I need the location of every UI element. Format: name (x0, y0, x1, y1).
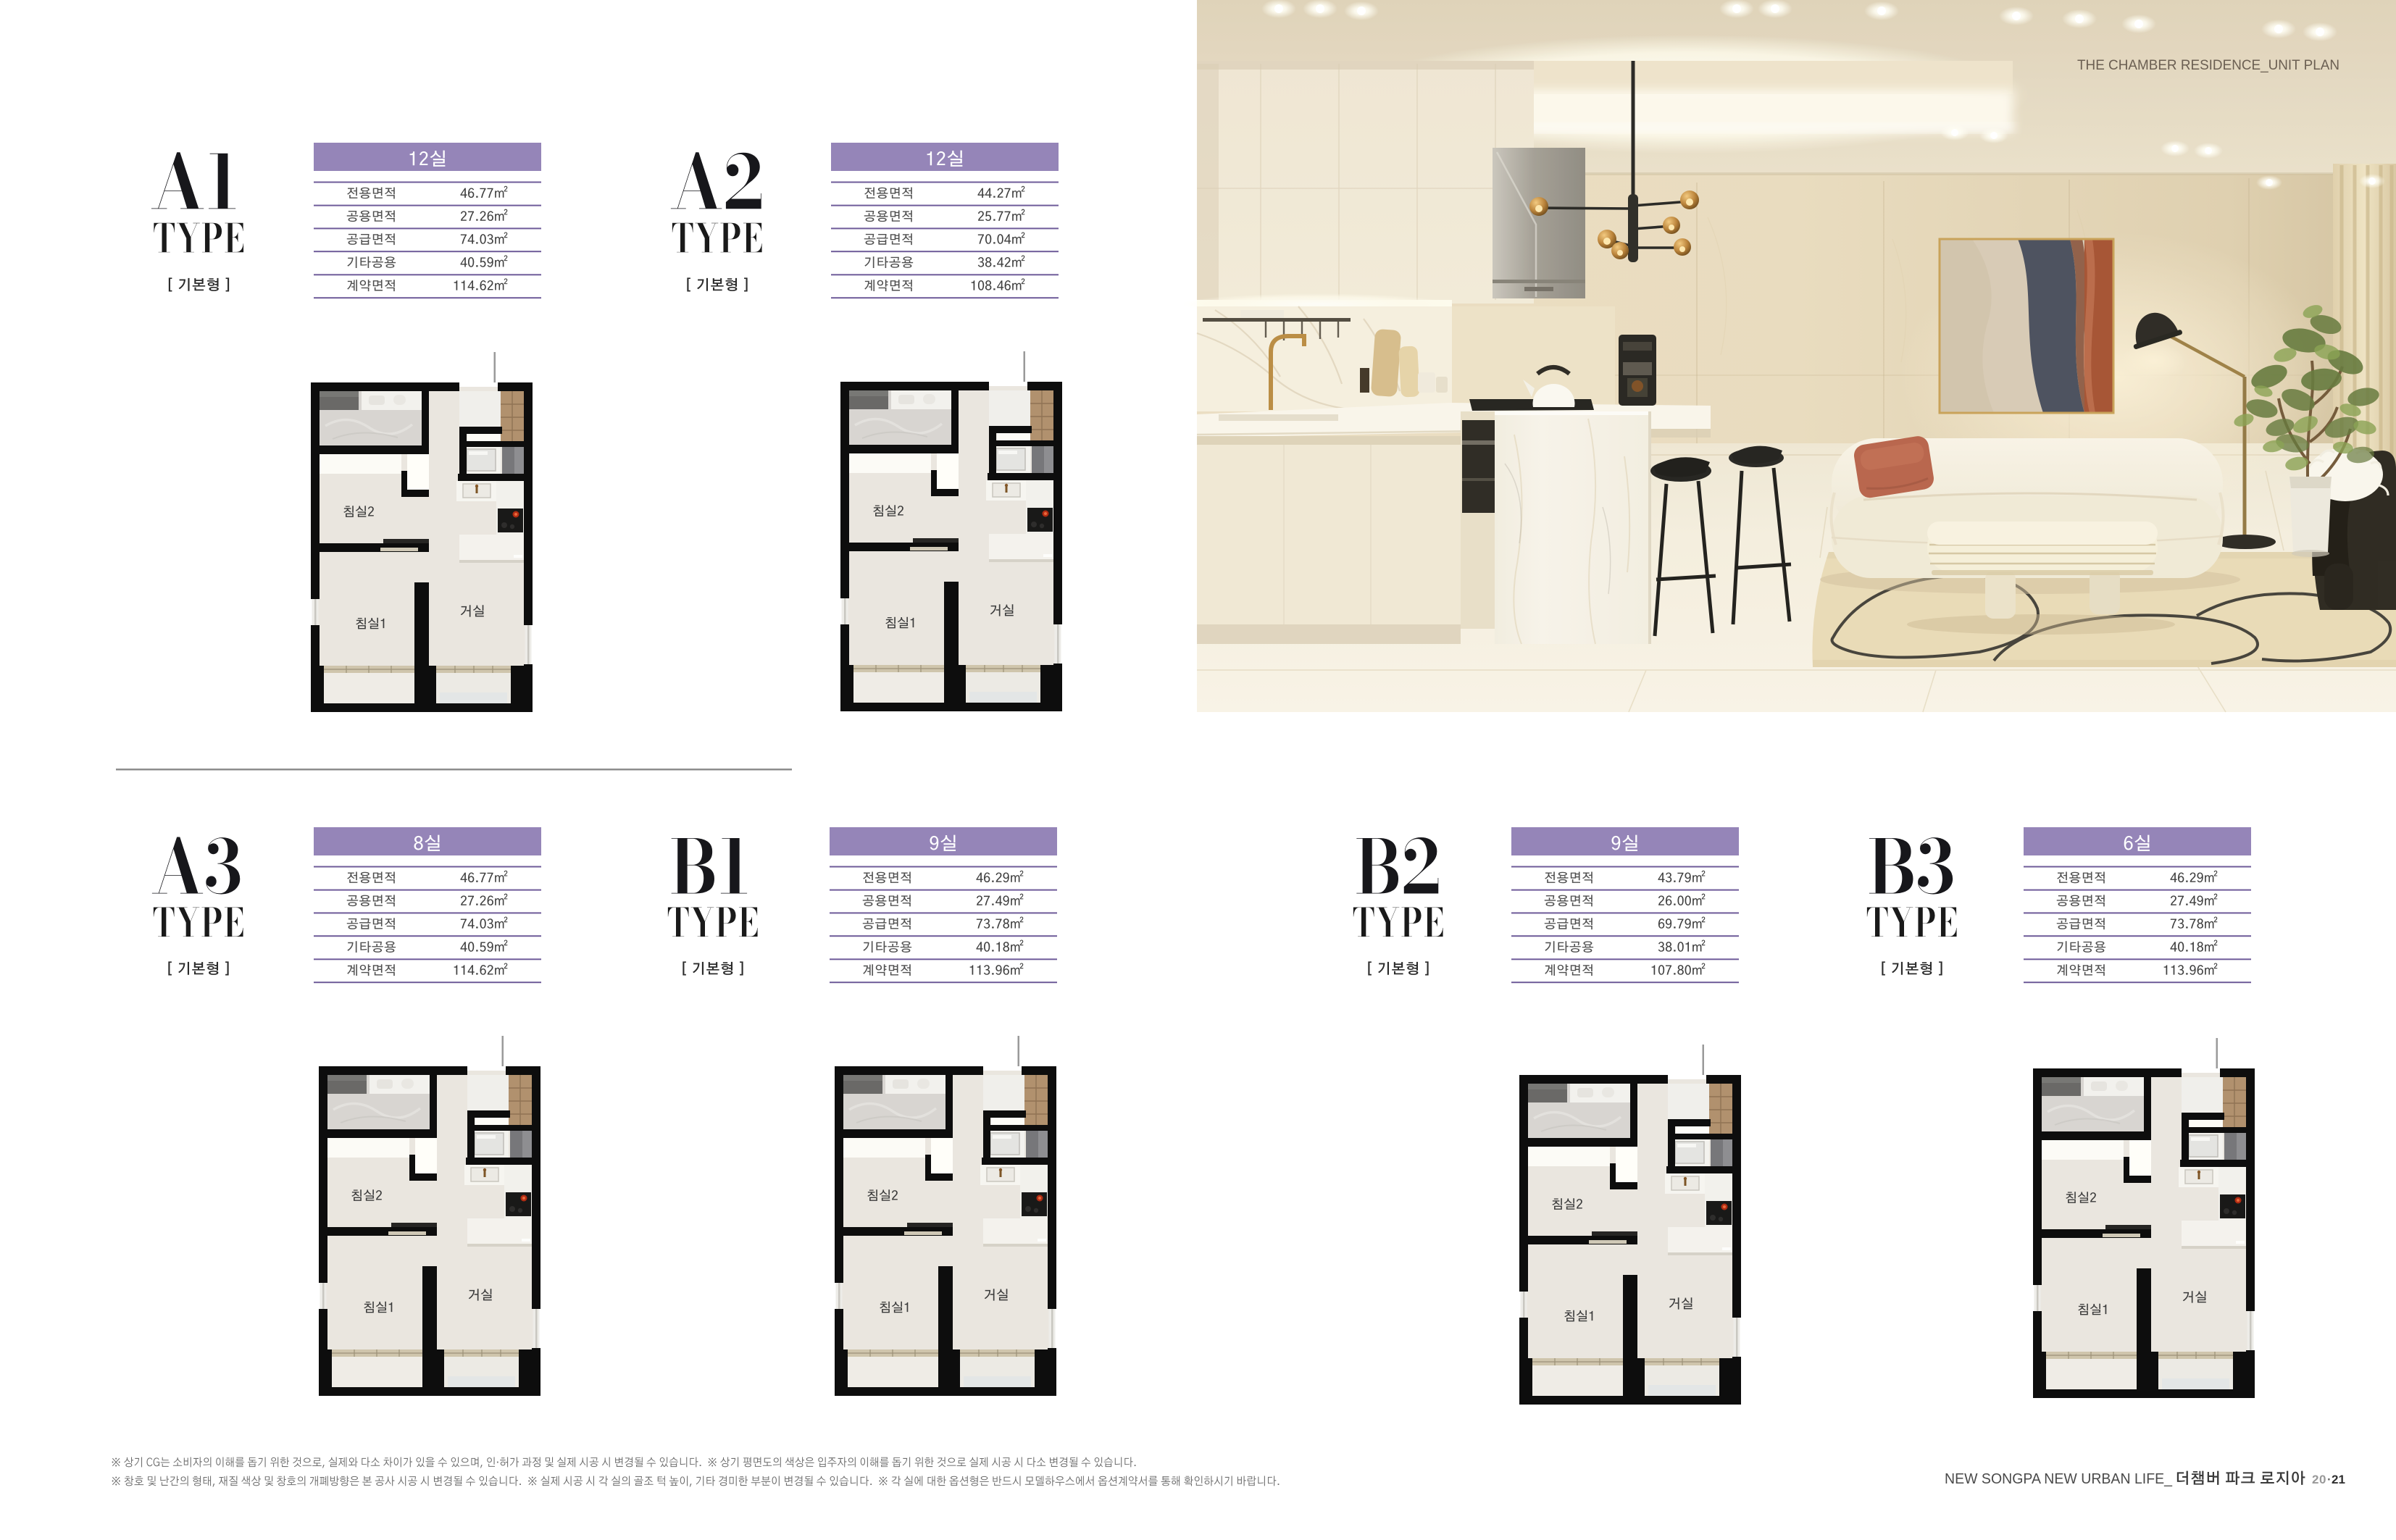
svg-text:THE CHAMBER RESIDENCE_UNIT PLA: THE CHAMBER RESIDENCE_UNIT PLAN (2077, 58, 2339, 73)
svg-text:21: 21 (2332, 1473, 2345, 1486)
svg-text:NEW SONGPA NEW URBAN LIFE_: NEW SONGPA NEW URBAN LIFE_ (1945, 1470, 2173, 1487)
svg-text:20: 20 (2312, 1473, 2326, 1486)
svg-text:·: · (2327, 1473, 2332, 1486)
